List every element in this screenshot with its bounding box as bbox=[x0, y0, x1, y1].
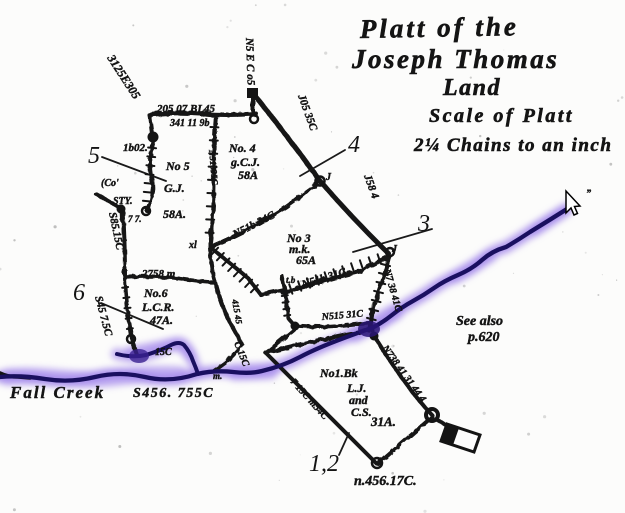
svg-text:4: 4 bbox=[348, 132, 360, 158]
svg-text:n.456.17C.: n.456.17C. bbox=[354, 474, 417, 489]
svg-text:1,2: 1,2 bbox=[309, 451, 339, 477]
svg-text:58A: 58A bbox=[238, 168, 258, 182]
svg-text:J: J bbox=[325, 172, 332, 183]
svg-text:No 5: No 5 bbox=[165, 159, 190, 173]
svg-text:205 07 BL45: 205 07 BL45 bbox=[156, 103, 216, 115]
svg-text:m.: m. bbox=[213, 371, 222, 381]
svg-text:1b02.: 1b02. bbox=[123, 142, 148, 154]
svg-text:Scale of Platt: Scale of Platt bbox=[429, 105, 574, 127]
svg-text:7 7.: 7 7. bbox=[128, 214, 142, 224]
svg-text:S456. 755C: S456. 755C bbox=[133, 386, 214, 401]
svg-text:31A.: 31A. bbox=[370, 414, 396, 429]
svg-text:„: „ bbox=[587, 183, 592, 194]
svg-text:47A.: 47A. bbox=[149, 313, 173, 327]
svg-text:341 11 9b: 341 11 9b bbox=[169, 118, 209, 129]
svg-text:No. 4: No. 4 bbox=[228, 141, 256, 155]
svg-text:2758 m: 2758 m bbox=[141, 268, 176, 280]
svg-text:C.S.: C.S. bbox=[351, 405, 372, 419]
svg-text:6: 6 bbox=[73, 280, 85, 306]
svg-text:J: J bbox=[391, 244, 398, 255]
svg-text:15C: 15C bbox=[155, 347, 172, 358]
svg-text:3: 3 bbox=[417, 211, 430, 237]
svg-text:(Co': (Co' bbox=[101, 178, 119, 189]
svg-text:No.6: No.6 bbox=[143, 286, 168, 300]
svg-text:xl: xl bbox=[188, 240, 197, 251]
svg-text:No1.Bk: No1.Bk bbox=[319, 366, 358, 380]
svg-text:N5 E C o5: N5 E C o5 bbox=[243, 37, 257, 86]
svg-text:65A: 65A bbox=[296, 253, 316, 267]
svg-text:58A.: 58A. bbox=[163, 207, 186, 221]
svg-text:Land: Land bbox=[442, 75, 501, 101]
svg-text:Joseph Thomas: Joseph Thomas bbox=[351, 44, 559, 74]
svg-text:5: 5 bbox=[88, 143, 100, 169]
svg-text:t.b: t.b bbox=[286, 275, 296, 285]
svg-text:2¼ Chains to an inch: 2¼ Chains to an inch bbox=[413, 135, 612, 156]
svg-text:p.620: p.620 bbox=[467, 330, 500, 345]
svg-text:Fall Creek: Fall Creek bbox=[9, 383, 105, 402]
svg-text:STY.: STY. bbox=[113, 196, 133, 207]
svg-text:Platt of the: Platt of the bbox=[359, 11, 519, 44]
svg-text:L.C.R.: L.C.R. bbox=[141, 300, 174, 314]
svg-text:See also: See also bbox=[456, 314, 503, 329]
svg-text:G.J.: G.J. bbox=[164, 181, 185, 195]
svg-text:g.C.J.: g.C.J. bbox=[230, 155, 260, 169]
